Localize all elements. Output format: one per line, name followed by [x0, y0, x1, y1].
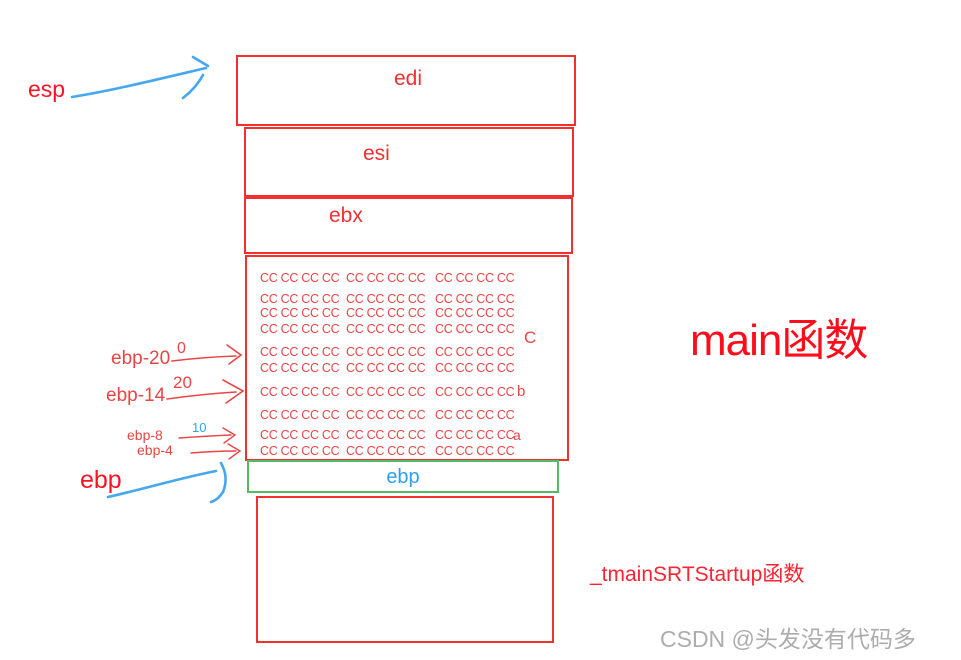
startup-function-caption: _tmainSRTStartup函数	[590, 558, 804, 588]
esp-arrow	[72, 57, 208, 98]
csdn-watermark: CSDN @头发没有代码多	[660, 620, 916, 654]
variable-c-marker: C	[524, 329, 536, 346]
saved-ebp-label: ebp	[249, 467, 557, 487]
local-variables-cell: CC CC CC CCCC CC CC CCCC CC CC CC CC CC …	[245, 255, 569, 461]
offset-value-20: 20	[173, 374, 192, 391]
stack-cell-esi: esi	[244, 127, 574, 197]
offset-label-ebp-20: ebp-20	[111, 349, 170, 368]
ebp-arrow	[108, 463, 226, 502]
offset-label-ebp-14: ebp-14	[106, 386, 165, 405]
ebx-label: ebx	[329, 205, 363, 226]
stack-cell-ebx: ebx	[244, 197, 573, 254]
cc-fill-row: CC CC CC CCCC CC CC CCCC CC CC CC	[247, 307, 567, 321]
offset-label-ebp-4: ebp-4	[137, 443, 173, 457]
cc-fill-row: CC CC CC CCCC CC CC CCCC CC CC CC	[247, 409, 567, 423]
offset-label-ebp-8: ebp-8	[127, 428, 163, 442]
offset-value-10: 10	[192, 421, 206, 434]
cc-fill-row: CC CC CC CCCC CC CC CCCC CC CC CC	[247, 323, 567, 337]
ebp-4-arrow	[191, 444, 240, 459]
main-function-caption: main函数	[690, 317, 867, 365]
offset-value-0: 0	[177, 341, 186, 357]
variable-b-marker: b	[517, 384, 525, 399]
esp-pointer-label: esp	[28, 78, 65, 101]
cc-fill-row: CC CC CC CCCC CC CC CCCC CC CC CC	[247, 346, 567, 360]
cc-fill-row: CC CC CC CCCC CC CC CCCC CC CC CC	[247, 445, 567, 459]
cc-fill-row: CC CC CC CCCC CC CC CCCC CC CC CC	[247, 362, 567, 376]
stack-frame-diagram: edi esi ebx CC CC CC CCCC CC CC CCCC CC …	[0, 0, 961, 660]
stack-cell-edi: edi	[236, 55, 576, 126]
cc-fill-row: CC CC CC CCCC CC CC CCCC CC CC CC	[247, 293, 567, 307]
saved-ebp-cell: ebp	[247, 460, 559, 493]
ebp-8-arrow	[179, 428, 235, 443]
ebp-pointer-label: ebp	[80, 468, 122, 493]
edi-label: edi	[394, 68, 422, 89]
variable-a-marker: a	[513, 428, 521, 442]
cc-fill-row: CC CC CC CCCC CC CC CCCC CC CC CC	[247, 272, 567, 286]
esi-label: esi	[363, 143, 390, 164]
caller-frame-cell	[256, 496, 554, 643]
